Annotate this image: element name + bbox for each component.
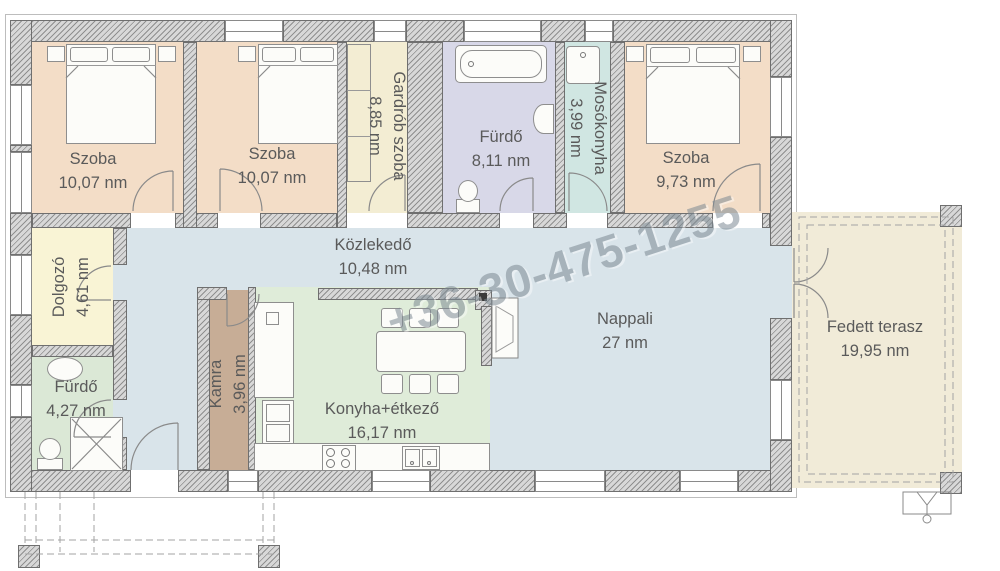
wall-segment — [113, 300, 127, 400]
chair — [409, 374, 431, 394]
terrace-pillar — [940, 472, 962, 494]
wall-segment — [770, 440, 792, 492]
porch-outline — [25, 492, 275, 554]
drain-dot — [468, 61, 474, 67]
wall-segment — [406, 20, 464, 42]
window — [585, 20, 613, 42]
garden-tap-icon — [903, 492, 951, 523]
wall-segment — [10, 417, 32, 492]
counter-sink — [266, 312, 279, 325]
window — [10, 255, 32, 315]
wall-segment — [607, 213, 713, 228]
terrace-door-floor — [770, 246, 792, 318]
shower-icon — [70, 417, 123, 471]
window — [10, 152, 32, 213]
basin-dot — [427, 461, 431, 465]
wall-segment — [533, 213, 567, 228]
wall-segment — [10, 20, 225, 42]
wall-segment — [605, 470, 680, 492]
dining-table — [376, 331, 466, 372]
toilet-icon — [39, 438, 61, 460]
porch-dash — [60, 492, 94, 552]
blanket-line — [258, 65, 338, 66]
sink-icon — [533, 104, 554, 134]
nightstand — [158, 46, 176, 62]
nightstand — [47, 46, 65, 62]
window — [10, 85, 32, 145]
wall-segment — [762, 213, 770, 228]
wall-segment — [260, 213, 337, 228]
tap-base — [903, 492, 951, 514]
tap-lines — [917, 492, 937, 514]
half-wall-vertical — [481, 306, 492, 366]
room-dolgozo — [32, 228, 113, 345]
wall-segment — [337, 42, 347, 228]
chair — [437, 374, 459, 394]
nightstand — [626, 46, 644, 62]
wall-segment — [32, 345, 113, 357]
chair — [409, 308, 431, 328]
wall-segment — [610, 42, 625, 213]
wall-segment — [541, 20, 585, 42]
toilet-icon — [458, 180, 478, 202]
porch-dash — [25, 540, 275, 554]
nightstand — [743, 46, 761, 62]
window — [464, 20, 541, 42]
window — [225, 20, 283, 42]
wall-segment — [10, 315, 32, 385]
chair — [437, 308, 459, 328]
wall-segment — [178, 470, 228, 492]
pillow — [262, 47, 296, 62]
half-wall-island — [318, 288, 478, 300]
wall-segment — [32, 213, 131, 228]
basin-dot — [410, 461, 414, 465]
chair — [381, 308, 403, 328]
burner — [341, 448, 350, 457]
wardrobe-icon — [347, 44, 371, 182]
room-terasz — [790, 212, 962, 488]
burner — [326, 448, 335, 457]
wall-segment — [407, 42, 443, 213]
wall-segment — [770, 20, 792, 77]
window — [372, 470, 430, 492]
tap-dot — [923, 515, 931, 523]
window — [770, 380, 792, 440]
fridge-inner — [266, 404, 290, 422]
burner — [326, 459, 335, 468]
wall-segment — [10, 145, 32, 152]
wall-segment — [10, 20, 32, 85]
washer-dot — [580, 52, 586, 58]
wall-segment — [113, 228, 127, 265]
window — [535, 470, 605, 492]
window — [10, 385, 32, 417]
chair — [381, 374, 403, 394]
wall-segment — [258, 470, 372, 492]
window — [770, 77, 792, 137]
pillow — [696, 47, 736, 63]
floor-plan: Szoba 10,07 nm Szoba 10,07 nm Gardrób sz… — [0, 0, 1000, 571]
pillow — [300, 47, 334, 62]
porch-pillar — [258, 545, 280, 568]
wall-segment — [770, 137, 792, 246]
blanket-line — [66, 65, 156, 66]
wall-segment — [197, 287, 210, 470]
room-kamra — [210, 290, 248, 470]
wall-segment — [283, 20, 374, 42]
wall-segment — [197, 287, 227, 300]
kitchen-counter — [254, 443, 490, 471]
wall-segment — [430, 470, 535, 492]
wall-segment — [183, 42, 197, 228]
wall-segment — [555, 42, 565, 213]
wardrobe-divider — [347, 136, 371, 137]
sink-icon — [47, 357, 83, 381]
burner — [341, 459, 350, 468]
fridge-inner — [266, 424, 290, 442]
porch-pillar — [18, 545, 40, 568]
wall-segment — [613, 20, 792, 42]
window — [680, 470, 738, 492]
blanket-line — [646, 66, 740, 67]
pillow — [650, 47, 690, 63]
porch-dash — [25, 492, 274, 545]
wall-segment — [407, 213, 500, 228]
pillow — [112, 47, 150, 62]
wall-segment — [770, 318, 792, 380]
nightstand — [238, 46, 256, 62]
wardrobe-divider — [347, 90, 371, 91]
pillow — [70, 47, 108, 62]
post-mark — [479, 293, 487, 301]
wall-segment — [10, 213, 32, 255]
window — [228, 470, 258, 492]
terrace-pillar — [940, 205, 962, 227]
window — [374, 20, 406, 42]
